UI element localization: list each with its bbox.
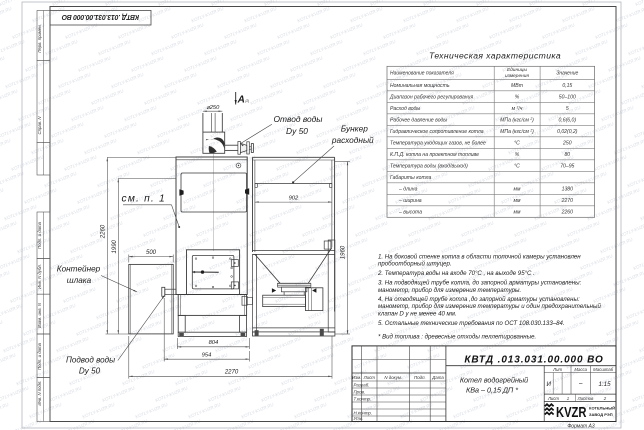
svg-text:Дата: Дата: [431, 375, 444, 380]
svg-text:500: 500: [146, 250, 157, 256]
svg-text:Подп.: Подп.: [414, 375, 426, 380]
svg-text:Dy 50: Dy 50: [79, 366, 101, 375]
svg-text:Лист: Лист: [363, 375, 376, 380]
svg-text:1990: 1990: [112, 239, 118, 253]
svg-text:мм: мм: [514, 198, 521, 204]
svg-text:Температура уходящих газов, не: Температура уходящих газов, не более: [390, 140, 486, 146]
svg-text:Перв. примен.: Перв. примен.: [37, 24, 42, 53]
svg-text:Н.контр.: Н.контр.: [354, 411, 373, 416]
svg-text:Т.контр.: Т.контр.: [354, 397, 372, 402]
svg-text:3. На подводящей трубе котла,: 3. На подводящей трубе котла, до запорно…: [378, 280, 582, 287]
svg-text:Подп. и дата: Подп. и дата: [37, 342, 42, 370]
svg-text:1:15: 1:15: [598, 381, 611, 388]
svg-text:0,02(0,2): 0,02(0,2): [557, 129, 578, 135]
svg-text:5. Остальные технические треб: 5. Остальные технические требования по О…: [378, 320, 565, 327]
svg-text:2260: 2260: [101, 224, 107, 239]
svg-text:КВТД .013.031.00.000 ВО: КВТД .013.031.00.000 ВО: [61, 13, 139, 20]
svg-text:Наименование показателя: Наименование показателя: [390, 71, 454, 77]
svg-text:1960: 1960: [341, 245, 347, 259]
svg-text:2. Температура воды на входе: 2. Температура воды на входе 70°С , на в…: [377, 270, 535, 277]
svg-text:Утв.: Утв.: [354, 416, 364, 421]
svg-text:измерения: измерения: [505, 74, 529, 79]
svg-text:шлака: шлака: [67, 276, 92, 285]
svg-text:–: –: [578, 380, 583, 387]
svg-text:КВТД .013.031.00.000 ВО: КВТД .013.031.00.000 ВО: [464, 354, 603, 365]
svg-text:°С: °С: [514, 163, 520, 169]
svg-text:пробоотборный штуцер.: пробоотборный штуцер.: [378, 261, 452, 268]
svg-text:0,15: 0,15: [562, 83, 572, 89]
svg-text:Бункер: Бункер: [341, 124, 368, 134]
svg-text:Взам. инв. N: Взам. инв. N: [37, 302, 42, 328]
svg-text:0,6(6,0): 0,6(6,0): [559, 117, 577, 123]
svg-text:902: 902: [289, 196, 299, 202]
svg-text:KVZR: KVZR: [556, 405, 587, 421]
svg-text:%: %: [515, 94, 520, 100]
svg-text:Котел водогрейный: Котел водогрейный: [460, 376, 528, 385]
svg-text:⌀250: ⌀250: [206, 105, 220, 111]
svg-text:мм: мм: [514, 209, 521, 215]
svg-text:Подп. и дата: Подп. и дата: [37, 221, 42, 249]
svg-text:1380: 1380: [562, 186, 573, 192]
svg-text:Инв. N дубл.: Инв. N дубл.: [37, 264, 42, 289]
svg-text:Масса: Масса: [574, 367, 587, 372]
svg-text:2260: 2260: [561, 209, 573, 215]
svg-text:Справ. N: Справ. N: [37, 116, 42, 135]
svg-text:1. На боковой стенке котла в: 1. На боковой стенке котла в области топ…: [378, 254, 581, 261]
svg-text:клапан D у не менее 40 мм.: клапан D у не менее 40 мм.: [378, 311, 457, 318]
svg-text:манометр, прибор для измерения: манометр, прибор для измерения температу…: [378, 303, 601, 310]
svg-text:манометр, прибор для измерения: манометр, прибор для измерения температу…: [378, 287, 521, 294]
svg-text:КОТЕЛЬНЫЙ: КОТЕЛЬНЫЙ: [589, 406, 615, 411]
svg-text:Рабочее давление воды: Рабочее давление воды: [390, 117, 447, 123]
svg-text:Разраб.: Разраб.: [354, 383, 370, 388]
svg-text:%: %: [515, 152, 520, 158]
svg-text:50–100: 50–100: [559, 94, 576, 100]
svg-text:ЗАВОД РЭП: ЗАВОД РЭП: [589, 412, 613, 417]
svg-text:* Вид топлива : древесные от: * Вид топлива : древесные отходы пеллети…: [378, 334, 536, 341]
svg-text:– ширина: – ширина: [398, 198, 422, 204]
svg-text:Расход воды: Расход воды: [390, 106, 420, 112]
svg-text:Габариты котла: Габариты котла: [390, 175, 431, 181]
svg-text:Масштаб: Масштаб: [593, 367, 614, 372]
svg-text:°С: °С: [514, 140, 520, 146]
svg-text:Инв. N подл.: Инв. N подл.: [37, 380, 42, 405]
svg-text:4. На отводящей трубе котла ,: 4. На отводящей трубе котла ,до запорной…: [378, 296, 580, 303]
svg-text:МПа (кгс/см 2): МПа (кгс/см 2): [500, 128, 534, 135]
svg-text:2270: 2270: [224, 370, 239, 376]
svg-text:Гидравлическое сопротивление к: Гидравлическое сопротивление котла: [390, 129, 484, 135]
svg-text:Контейнер: Контейнер: [57, 265, 101, 274]
svg-text:5: 5: [566, 106, 569, 112]
svg-text:И: И: [546, 381, 551, 388]
svg-text:N докум.: N докум.: [384, 375, 402, 380]
svg-text:Dy 50: Dy 50: [286, 126, 308, 136]
svg-text:– длина: – длина: [398, 186, 418, 192]
svg-text:Температура воды (вход/выход): Температура воды (вход/выход): [390, 163, 468, 169]
svg-text:мм: мм: [514, 186, 521, 192]
svg-text:Пров.: Пров.: [354, 390, 366, 395]
svg-text:Подвод воды: Подвод воды: [66, 356, 115, 365]
svg-text:Изм.: Изм.: [352, 375, 361, 380]
svg-text:Диапазон рабочего регулировани: Диапазон рабочего регулирования: [389, 94, 473, 100]
svg-text:расходный: расходный: [331, 135, 374, 145]
svg-text:Техническая характеристика: Техническая характеристика: [429, 51, 561, 61]
svg-text:Отвод воды: Отвод воды: [274, 114, 323, 124]
svg-text:2270: 2270: [561, 198, 573, 204]
svg-text:А: А: [237, 95, 245, 106]
svg-text:КВа – 0,15 ДП *: КВа – 0,15 ДП *: [466, 385, 518, 394]
svg-text:МВт: МВт: [511, 83, 523, 89]
svg-text:– высота: – высота: [398, 209, 422, 215]
svg-text:Значение: Значение: [556, 71, 578, 77]
svg-text:Единицы: Единицы: [507, 67, 528, 73]
svg-text:Формат А3: Формат А3: [567, 424, 595, 430]
svg-text:МПа (кгс/см 2): МПа (кгс/см 2): [500, 117, 534, 124]
svg-text:Номинальная мощность: Номинальная мощность: [390, 83, 450, 89]
svg-text:250: 250: [562, 140, 572, 146]
svg-text:954: 954: [202, 353, 212, 359]
svg-text:804: 804: [209, 340, 219, 346]
svg-text:Листов: Листов: [577, 396, 594, 401]
svg-text:Лист: Лист: [547, 396, 559, 401]
svg-text:см. п. 1: см. п. 1: [122, 193, 166, 204]
svg-text:(2): (2): [245, 99, 249, 103]
svg-text:Лит: Лит: [552, 367, 562, 372]
svg-text:80: 80: [564, 152, 570, 158]
svg-text:К.П.Д. котла на проектном топл: К.П.Д. котла на проектном топливе: [390, 152, 479, 158]
svg-text:70–95: 70–95: [560, 163, 574, 169]
